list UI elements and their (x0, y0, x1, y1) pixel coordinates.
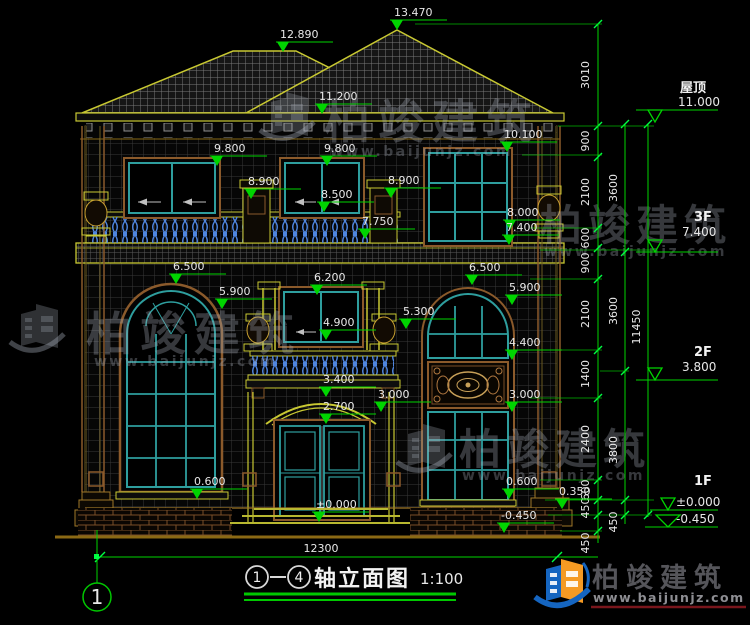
svg-text:1F: 1F (694, 474, 712, 489)
svg-text:9.800: 9.800 (214, 142, 246, 155)
svg-text:3.400: 3.400 (323, 373, 355, 386)
axis-bubble-1: 1 (83, 530, 111, 611)
level-roof: 屋顶 11.000 (636, 81, 720, 122)
svg-text:2F: 2F (694, 345, 712, 360)
axis-to: 4 (295, 570, 304, 586)
cad-elevation-drawing: 柏竣建筑 www.baijunjz.com 柏竣建筑 www.baijunjz.… (0, 0, 750, 625)
svg-text:7.750: 7.750 (362, 215, 394, 228)
dim-value: 2400 (579, 425, 592, 453)
svg-text:0.600: 0.600 (194, 475, 226, 488)
svg-text:7.400: 7.400 (506, 221, 538, 234)
ornament-panel (428, 362, 508, 408)
overall-width-dim: 12300 (95, 542, 598, 562)
svg-text:4.900: 4.900 (323, 316, 355, 329)
dim-value: 3800 (607, 436, 620, 464)
window-3f-right (424, 148, 512, 246)
svg-text:3.000: 3.000 (378, 388, 410, 401)
svg-text:5.900: 5.900 (219, 285, 251, 298)
axis-from: 1 (253, 570, 262, 586)
svg-text:12.890: 12.890 (280, 28, 319, 41)
drawing-title: 1 4 轴立面图 1:100 (244, 566, 463, 600)
svg-text:11.000: 11.000 (678, 95, 720, 109)
svg-text:8.000: 8.000 (507, 206, 539, 219)
svg-text:0.600: 0.600 (506, 475, 538, 488)
svg-text:11.200: 11.200 (319, 90, 358, 103)
dim-value: 3600 (607, 297, 620, 325)
svg-text:柏竣建筑: 柏竣建筑 (459, 425, 651, 474)
svg-text:-0.450: -0.450 (501, 509, 536, 522)
svg-text:4.400: 4.400 (509, 336, 541, 349)
title-scale: 1:100 (420, 570, 463, 588)
dim-value: 600 (579, 228, 592, 249)
svg-text:www.baijunjz.com: www.baijunjz.com (94, 354, 277, 370)
elevation-marker: 13.470 (390, 6, 447, 30)
svg-text:8.900: 8.900 (388, 174, 420, 187)
svg-text:7.400: 7.400 (682, 225, 716, 239)
svg-text:3.800: 3.800 (682, 360, 716, 374)
drawing-canvas: 柏竣建筑 www.baijunjz.com 柏竣建筑 www.baijunjz.… (0, 0, 750, 625)
watermark-left: 柏竣建筑 www.baijunjz.com (10, 304, 302, 370)
company-logo-icon (535, 559, 589, 605)
svg-text:3.000: 3.000 (509, 388, 541, 401)
dim-value: 900 (579, 253, 592, 274)
level-1f: 1F ±0.000 -0.450 (645, 474, 720, 527)
dim-value: 450 (607, 512, 620, 533)
dim-value: 1400 (579, 360, 592, 388)
svg-text:2.700: 2.700 (323, 400, 355, 413)
svg-text:5.300: 5.300 (403, 305, 435, 318)
svg-text:www.baijunjz.com: www.baijunjz.com (330, 144, 513, 160)
dim-value: 3600 (607, 174, 620, 202)
svg-text:1: 1 (91, 585, 104, 609)
svg-text:6.200: 6.200 (314, 271, 346, 284)
svg-text:3F: 3F (694, 210, 712, 225)
svg-text:12300: 12300 (304, 542, 339, 555)
dim-value: 450 (579, 533, 592, 554)
svg-text:0.350: 0.350 (559, 485, 591, 498)
dim-value: 900 (579, 131, 592, 152)
svg-text:5.900: 5.900 (509, 281, 541, 294)
svg-text:±0.000: ±0.000 (316, 498, 357, 511)
elevation-marker: 12.890 (276, 28, 333, 52)
svg-text:13.470: 13.470 (394, 6, 433, 19)
svg-text:9.800: 9.800 (324, 142, 356, 155)
svg-text:柏竣建筑: 柏竣建筑 (86, 307, 302, 361)
footer-logo: 柏竣建筑 www.baijunjz.com (535, 559, 746, 607)
dim-value: 2100 (579, 178, 592, 206)
svg-text:8.500: 8.500 (321, 188, 353, 201)
dim-value: 450 (579, 498, 592, 519)
svg-text:10.100: 10.100 (504, 128, 543, 141)
svg-text:www.baijunjz.com: www.baijunjz.com (462, 468, 645, 484)
svg-text:-0.450: -0.450 (676, 512, 715, 526)
svg-text:屋顶: 屋顶 (680, 81, 706, 96)
svg-text:6.500: 6.500 (173, 260, 205, 273)
svg-text:8.900: 8.900 (248, 175, 280, 188)
svg-text:6.500: 6.500 (469, 261, 501, 274)
dim-value: 3010 (579, 61, 592, 89)
dim-value: 11450 (630, 310, 643, 345)
dim-value: 2100 (579, 300, 592, 328)
window-3f-left (124, 158, 220, 218)
svg-text:±0.000: ±0.000 (676, 495, 720, 509)
company-url: www.baijunjz.com (593, 590, 745, 605)
title-text: 轴立面图 (314, 566, 410, 592)
